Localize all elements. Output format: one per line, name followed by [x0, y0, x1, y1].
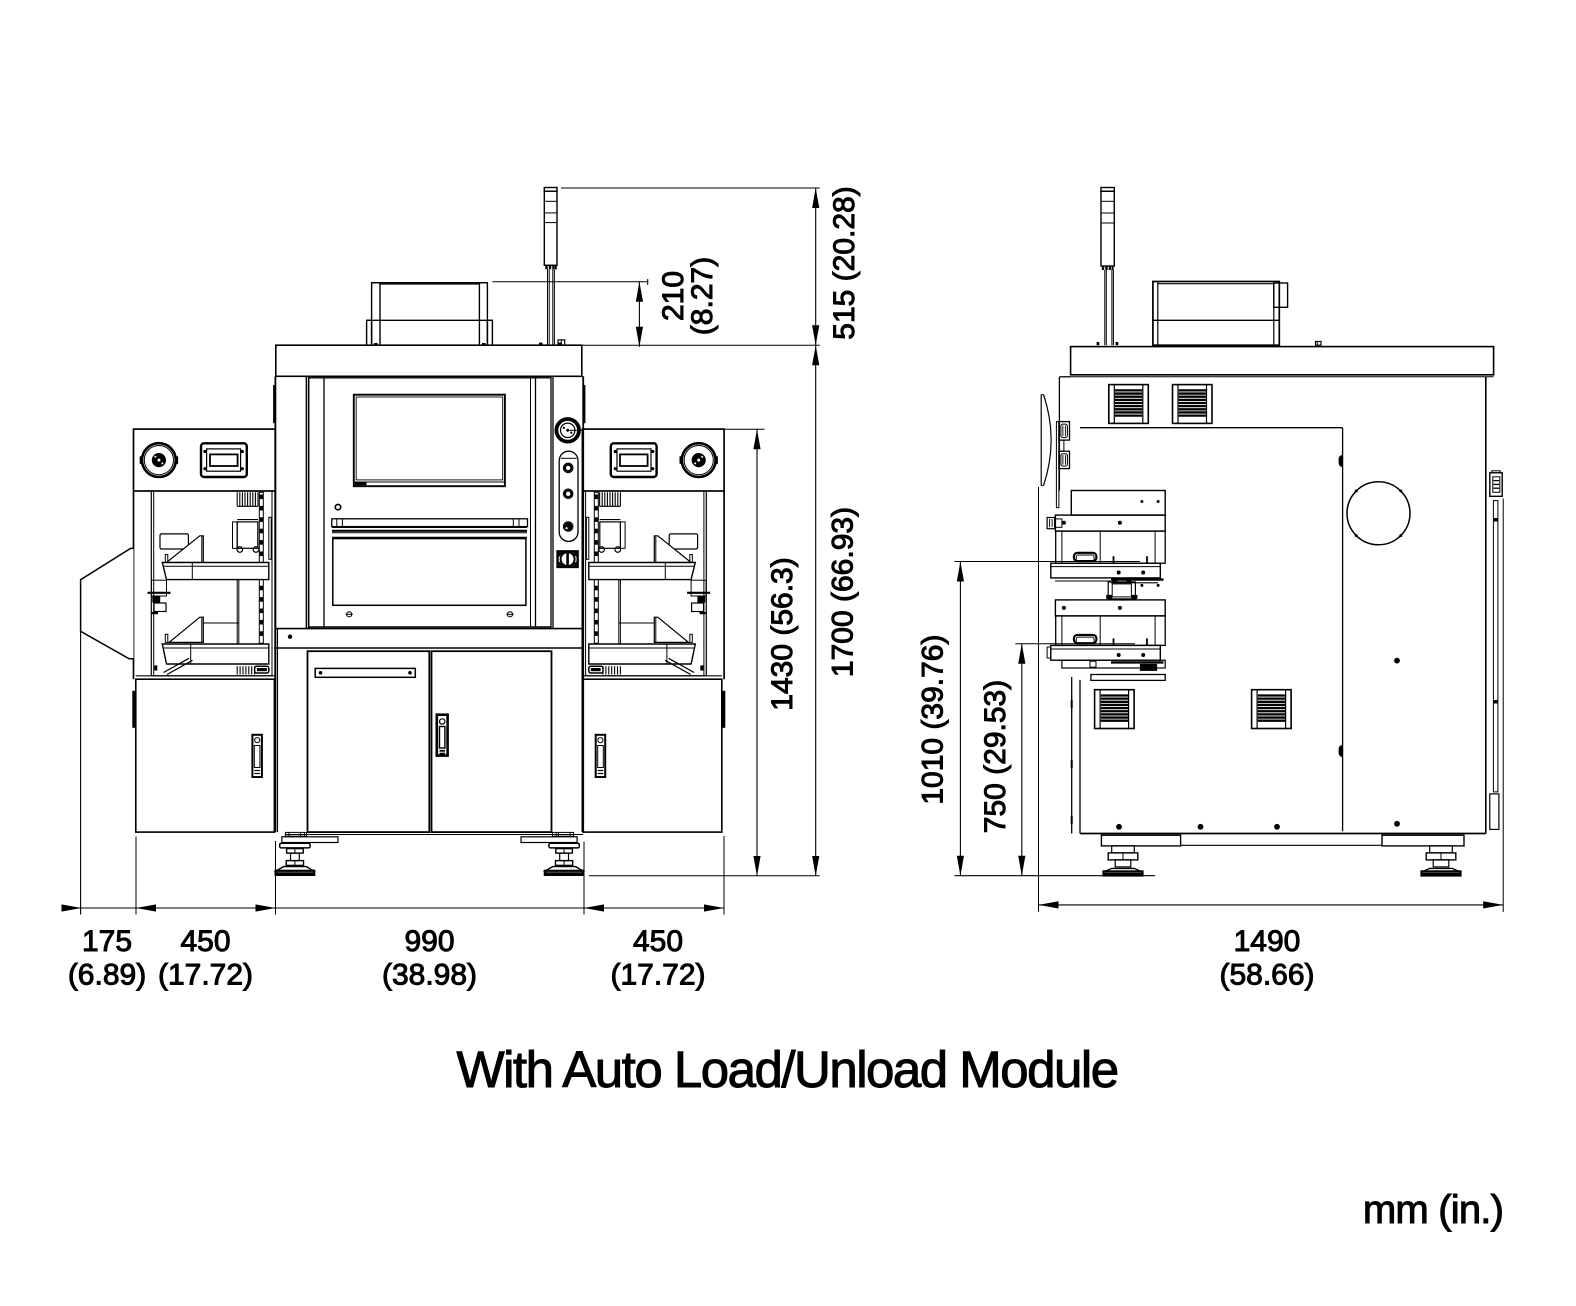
svg-text:(38.98): (38.98)	[382, 959, 477, 992]
svg-text:515 (20.28): 515 (20.28)	[828, 186, 861, 339]
svg-text:450: 450	[180, 925, 230, 958]
svg-text:mm (in.): mm (in.)	[1363, 1188, 1503, 1232]
svg-text:(58.66): (58.66)	[1219, 959, 1314, 992]
svg-text:1490: 1490	[1234, 925, 1301, 958]
svg-text:1700 (66.93): 1700 (66.93)	[827, 507, 860, 677]
svg-text:175: 175	[82, 925, 132, 958]
svg-text:(8.27): (8.27)	[686, 257, 719, 335]
svg-text:1010 (39.76): 1010 (39.76)	[917, 635, 950, 805]
svg-text:(17.72): (17.72)	[158, 959, 253, 992]
svg-text:450: 450	[633, 925, 683, 958]
svg-text:1430 (56.3): 1430 (56.3)	[766, 557, 799, 710]
svg-text:990: 990	[404, 925, 454, 958]
svg-text:(17.72): (17.72)	[610, 959, 705, 992]
svg-text:750 (29.53): 750 (29.53)	[979, 680, 1012, 833]
svg-text:With Auto Load/Unload Module: With Auto Load/Unload Module	[456, 1041, 1117, 1098]
svg-text:(6.89): (6.89)	[68, 959, 146, 992]
